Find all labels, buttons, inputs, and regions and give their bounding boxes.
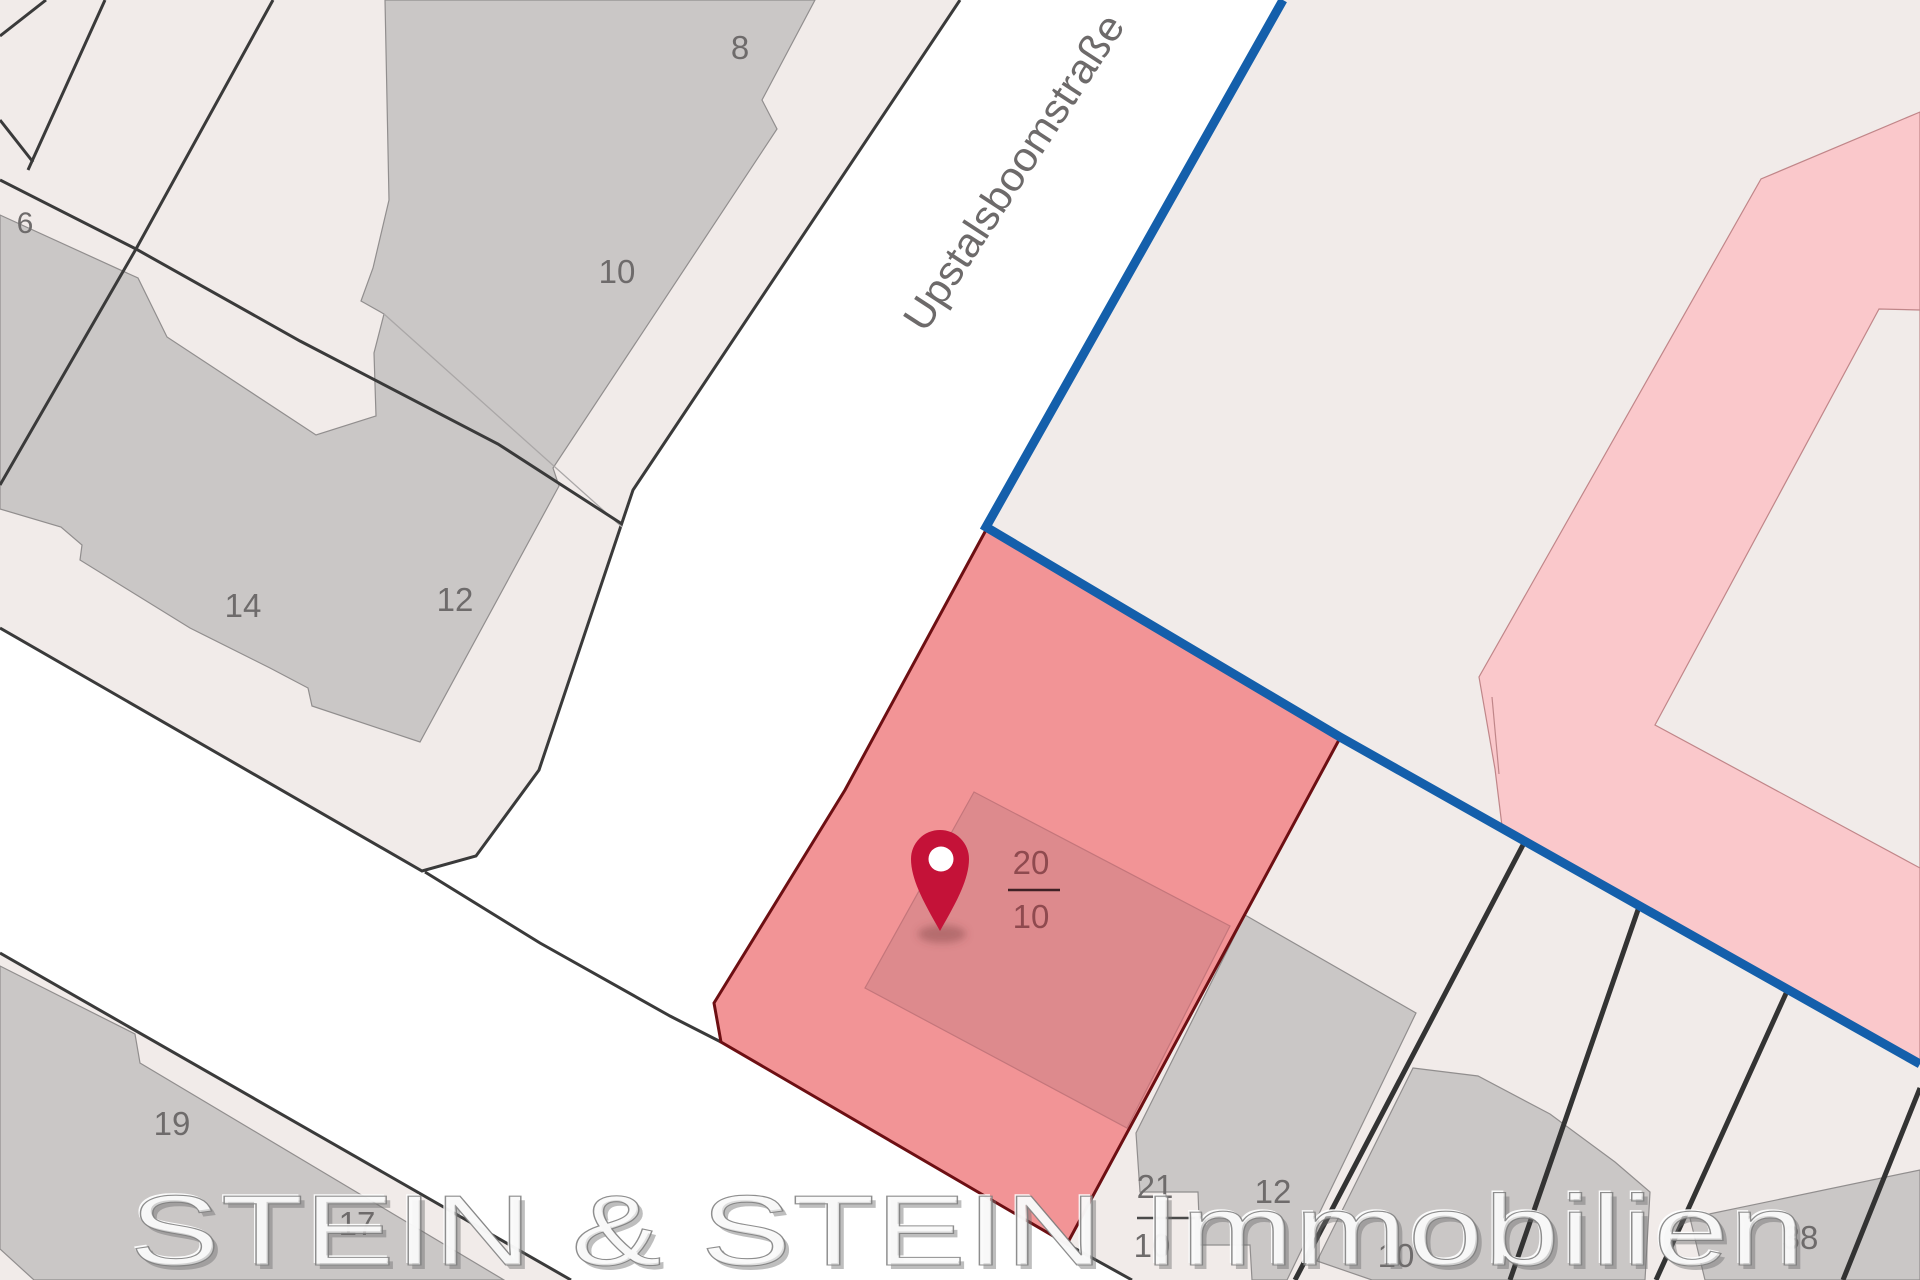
svg-text:6: 6 — [17, 207, 34, 240]
svg-text:14: 14 — [225, 587, 262, 624]
svg-text:12: 12 — [437, 581, 474, 618]
svg-text:STEIN & STEIN Immobilien: STEIN & STEIN Immobilien — [130, 1175, 1806, 1280]
svg-text:10: 10 — [1013, 898, 1050, 935]
svg-text:20: 20 — [1013, 844, 1050, 881]
svg-text:10: 10 — [599, 253, 636, 290]
svg-text:19: 19 — [154, 1105, 191, 1142]
svg-text:8: 8 — [731, 29, 749, 66]
